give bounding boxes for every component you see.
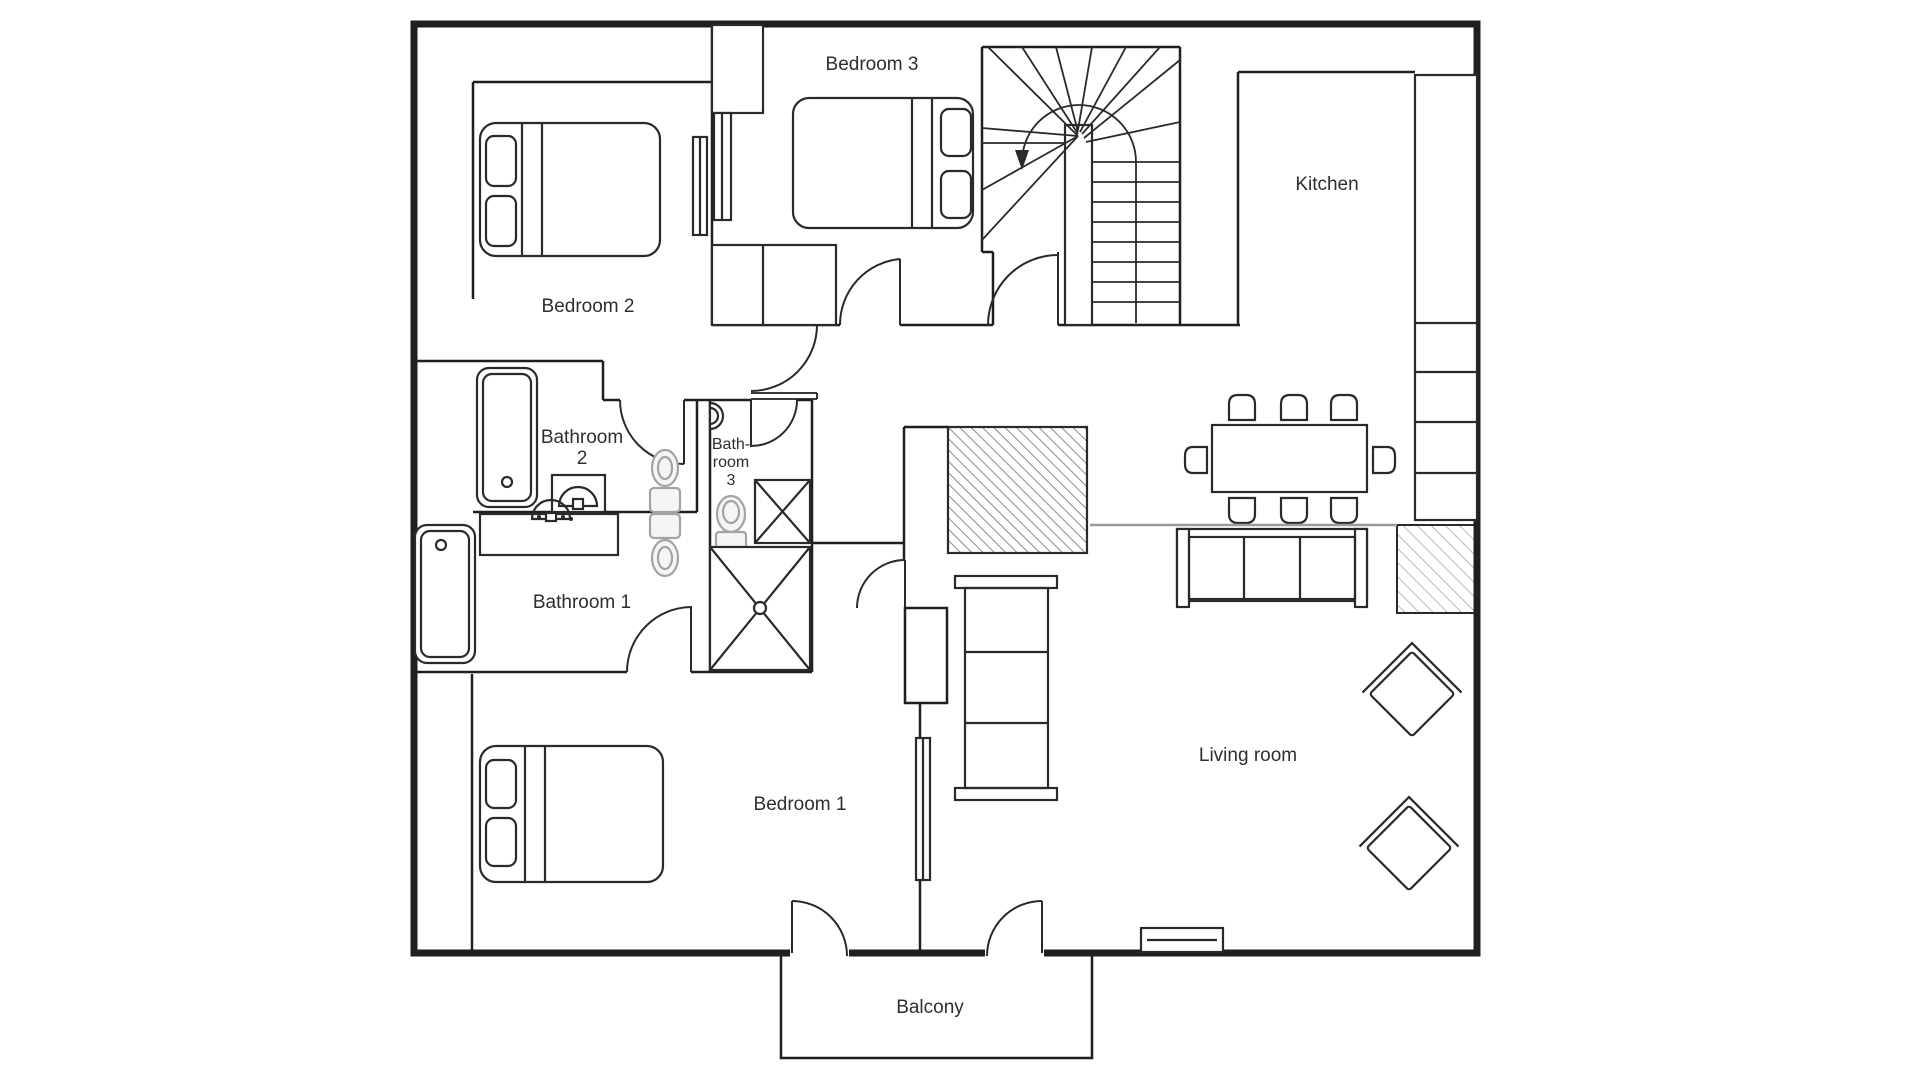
shower-bathroom3-small	[755, 480, 810, 543]
floor-plan-drawing: Bedroom 3 Kitchen Bedroom 2 Bathroom 2 B…	[0, 0, 1920, 1080]
bed-bedroom1	[480, 746, 663, 882]
balcony-door-gap-1	[790, 946, 849, 960]
sink-vanity-bathroom2	[552, 475, 605, 519]
kitchen-counter	[1415, 75, 1477, 520]
bedroom2-label: Bedroom 2	[542, 296, 635, 317]
balcony-label: Balcony	[896, 997, 964, 1018]
radiator	[916, 738, 930, 880]
floor-plan-page: Bedroom 3 Kitchen Bedroom 2 Bathroom 2 B…	[0, 0, 1920, 1080]
bathroom2-label-line2: 2	[577, 448, 588, 469]
living-room-window	[1141, 928, 1223, 952]
bed-bedroom3	[793, 98, 973, 228]
bathroom1-label: Bathroom 1	[533, 592, 631, 613]
wall-hatch-block	[1397, 525, 1477, 613]
bathtub-bathroom1	[415, 525, 475, 663]
closet-bedroom3-top	[712, 25, 763, 113]
bed-bedroom2	[480, 123, 660, 256]
bedroom1-label: Bedroom 1	[754, 794, 847, 815]
bathtub-bathroom2	[477, 368, 537, 507]
dining-table	[1212, 425, 1367, 492]
chimney-hatch-block	[948, 427, 1087, 553]
shower-bathroom3-large	[710, 547, 810, 670]
toilet-bathroom3	[716, 496, 746, 548]
wardrobe-bedroom3	[714, 113, 731, 220]
bedroom1-door	[857, 560, 905, 608]
bathroom3-label-line3: 3	[727, 472, 736, 489]
sofa	[1177, 529, 1367, 607]
bathroom2-label-line1: Bathroom	[541, 427, 623, 448]
closet-bedroom3-bottom	[712, 245, 836, 325]
stair-spine	[1065, 125, 1092, 325]
wardrobe-bedroom2	[693, 137, 707, 235]
stair-landing-door	[988, 252, 1058, 325]
staircase	[982, 47, 1180, 325]
kitchen-label: Kitchen	[1295, 174, 1358, 195]
corridor-door	[751, 325, 817, 391]
balcony-door-gap-2	[985, 946, 1044, 960]
living-room-label: Living room	[1199, 745, 1297, 766]
bedroom3-label: Bedroom 3	[826, 54, 919, 75]
bathroom3-label-line1: Bath-	[712, 436, 750, 453]
bathroom3-label-line2: room	[713, 454, 749, 471]
